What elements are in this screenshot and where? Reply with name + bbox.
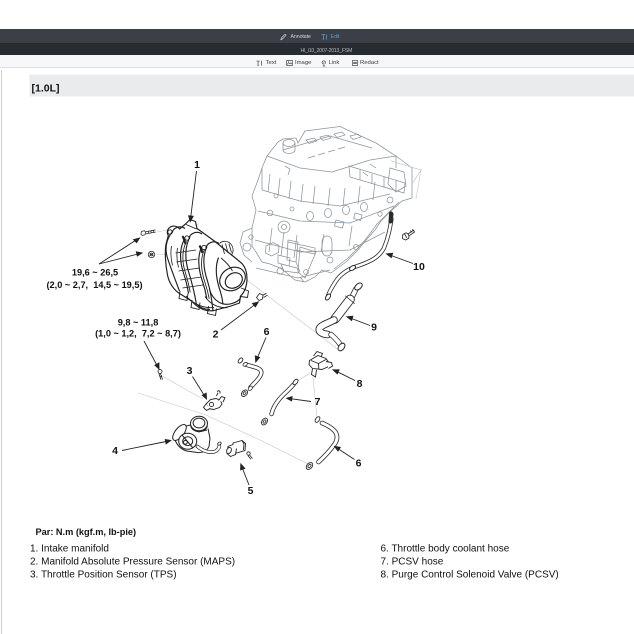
svg-text:1: 1 xyxy=(194,159,200,171)
svg-text:1. Intake manifold: 1. Intake manifold xyxy=(30,544,109,555)
svg-text:8. Purge Control Solenoid Valv: 8. Purge Control Solenoid Valve (PCSV) xyxy=(381,570,559,581)
svg-text:6. Throttle body coolant hose: 6. Throttle body coolant hose xyxy=(381,544,510,555)
svg-text:5: 5 xyxy=(248,485,254,497)
svg-text:2: 2 xyxy=(213,329,219,341)
svg-text:(2,0 ~ 2,7, 14,5 ~ 19,5): (2,0 ~ 2,7, 14,5 ~ 19,5) xyxy=(46,280,142,290)
svg-text:10: 10 xyxy=(413,261,425,273)
svg-text:9,8 ~ 11,8: 9,8 ~ 11,8 xyxy=(118,318,159,328)
svg-text:6: 6 xyxy=(264,326,270,338)
svg-text:(1,0 ~ 1,2, 7,2 ~ 8,7): (1,0 ~ 1,2, 7,2 ~ 8,7) xyxy=(95,329,181,339)
svg-text:4: 4 xyxy=(112,445,118,457)
svg-text:3: 3 xyxy=(187,365,193,377)
svg-text:2. Manifold Absolute Pressure: 2. Manifold Absolute Pressure Sensor (MA… xyxy=(30,557,235,568)
svg-text:6: 6 xyxy=(356,458,362,470)
svg-text:Par: N.m (kgf.m, lb-pie): Par: N.m (kgf.m, lb-pie) xyxy=(36,527,137,537)
svg-text:7. PCSV hose: 7. PCSV hose xyxy=(381,557,444,568)
svg-text:8: 8 xyxy=(357,378,363,390)
svg-text:9: 9 xyxy=(371,322,377,334)
svg-text:7: 7 xyxy=(315,396,321,408)
svg-text:[1.0L]: [1.0L] xyxy=(32,82,60,94)
svg-text:19,6 ~ 26,5: 19,6 ~ 26,5 xyxy=(72,268,118,278)
svg-text:3. Throttle Position Sensor (T: 3. Throttle Position Sensor (TPS) xyxy=(30,570,177,581)
